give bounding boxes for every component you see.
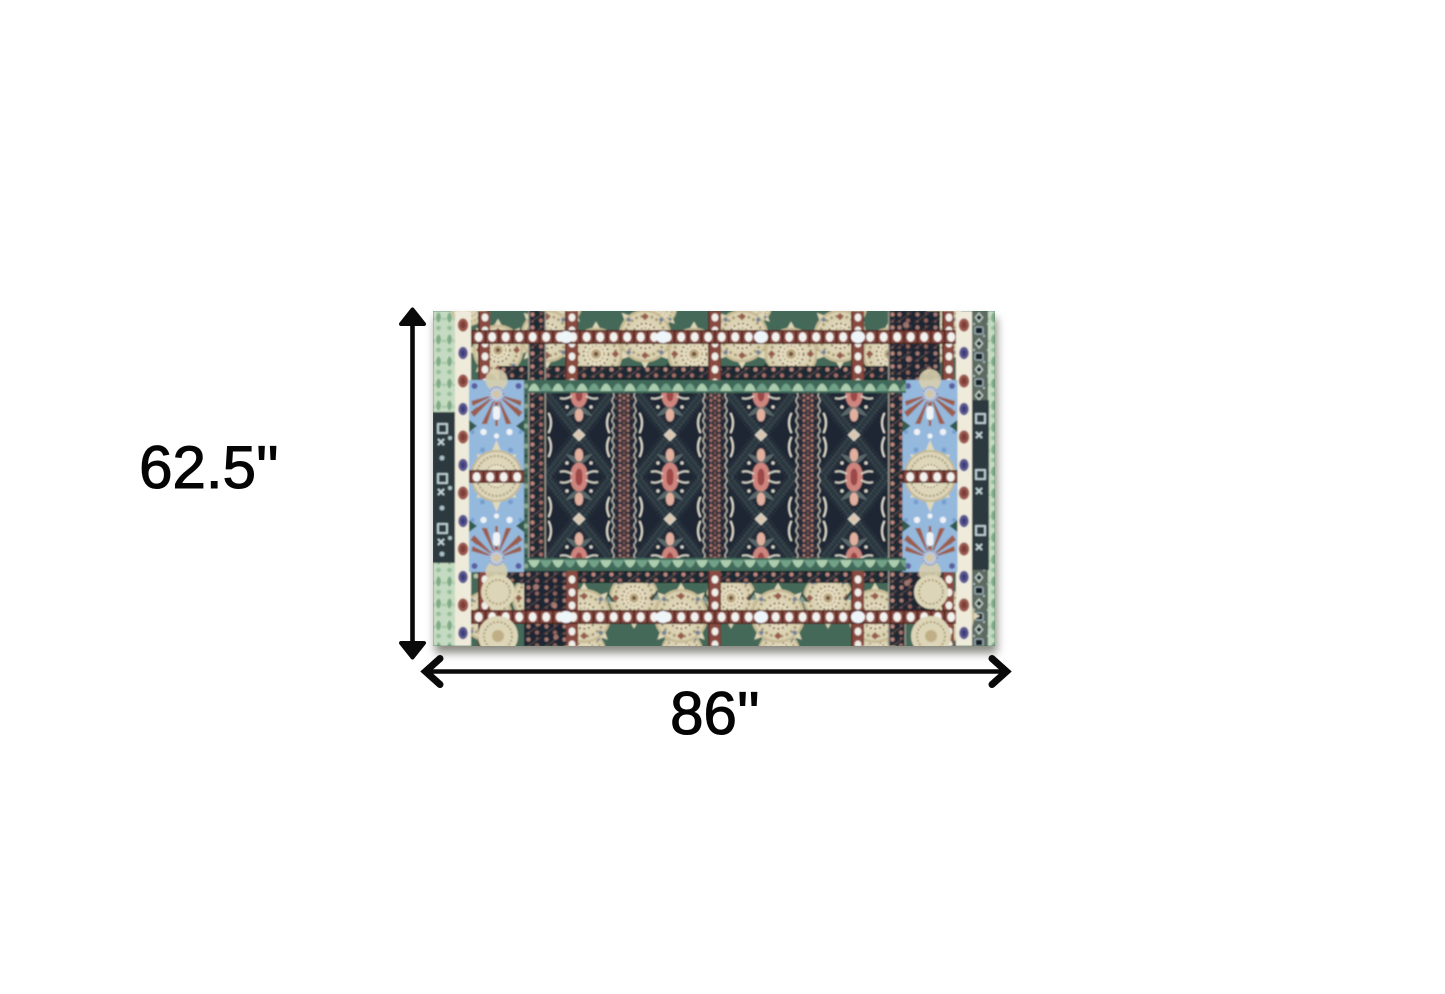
svg-text:62.5'': 62.5'' [139,434,279,501]
svg-text:86'': 86'' [670,680,760,747]
